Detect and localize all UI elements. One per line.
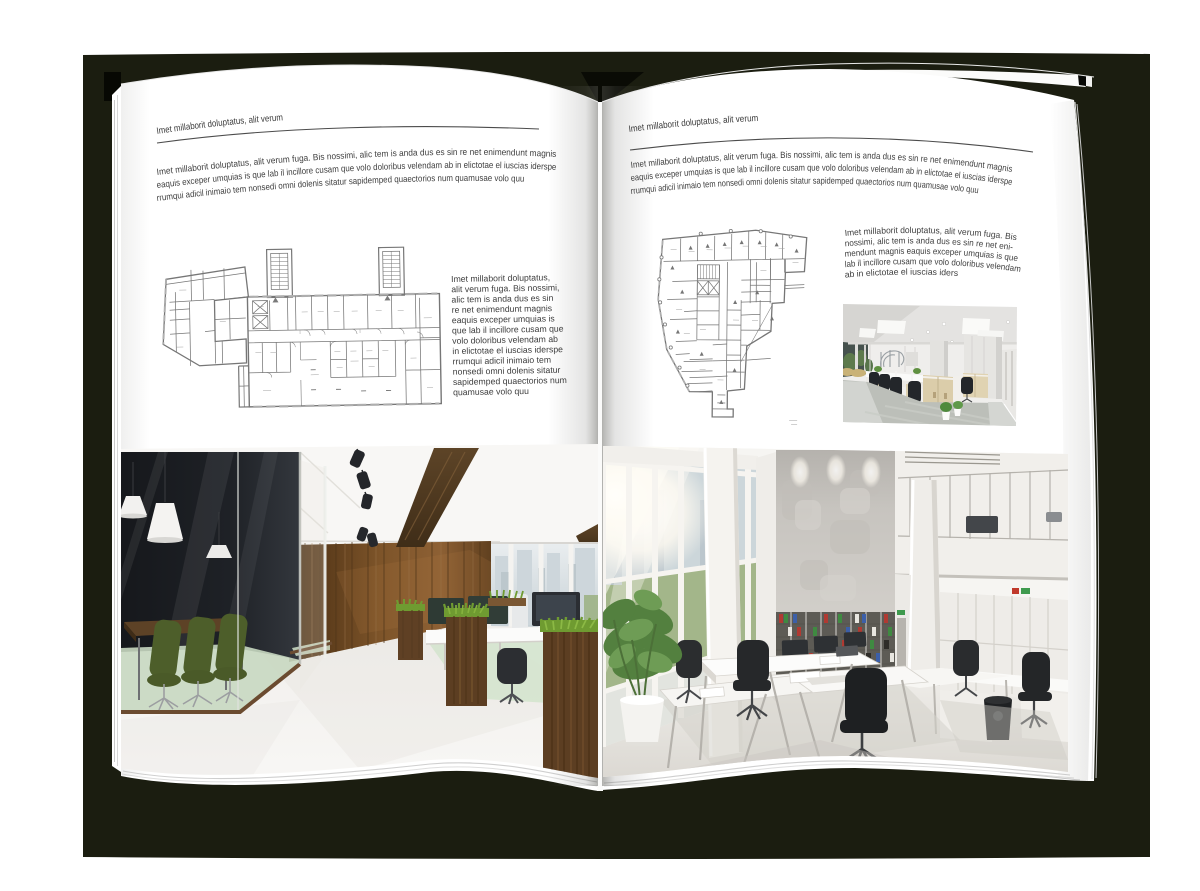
svg-text:quamusae volo quu: quamusae volo quu bbox=[453, 386, 529, 397]
svg-text:sapidemped quaectorios num: sapidemped quaectorios num bbox=[453, 375, 567, 387]
